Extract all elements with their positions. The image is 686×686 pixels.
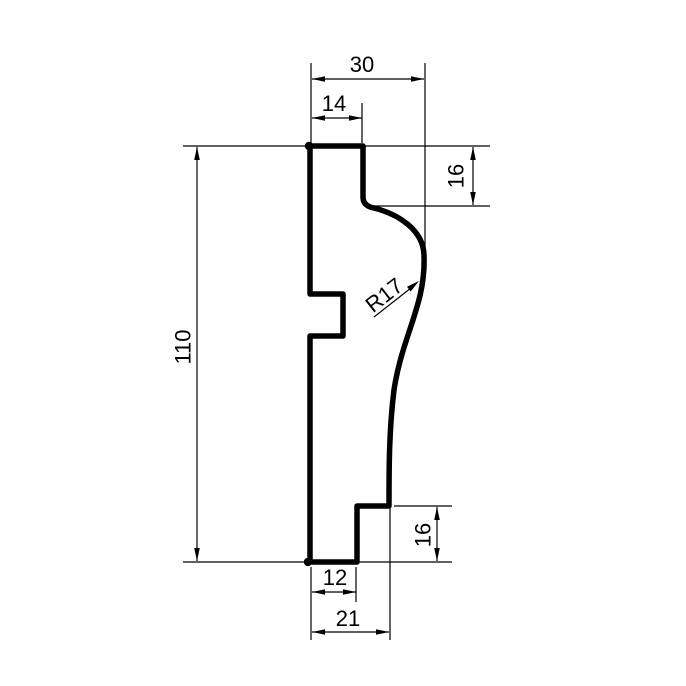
arrow-12-right [343,589,356,595]
arrow-16-lower-down [434,548,440,561]
profile-outline [310,146,424,562]
dimension-lines [197,79,473,632]
label-lower-right-height: 16 [411,523,436,547]
drawing-canvas: 30 14 16 110 R17 16 12 21 [0,0,686,686]
label-top-face-width: 14 [322,91,346,116]
profile-path [310,146,424,562]
arrowheads [194,76,476,635]
label-top-width: 30 [350,52,374,77]
extension-lines [183,63,490,640]
label-radius: R17 [361,273,408,318]
arrow-12-left [312,589,325,595]
label-bottom-inner-width: 12 [323,565,347,590]
arrow-21-right [376,629,389,635]
arrow-30-left [312,76,325,82]
arrow-16-upper-down [470,192,476,205]
arrow-30-right [411,76,424,82]
dimension-labels: 30 14 16 110 R17 16 12 21 [171,52,469,631]
arrow-110-down [194,548,200,561]
corner-dot-bottom-left [304,558,312,566]
corner-dot-top-left [305,142,313,150]
arrow-14-right [349,115,362,121]
arrow-110-up [194,147,200,160]
label-bottom-width: 21 [336,606,360,631]
arrow-14-left [312,115,325,121]
label-upper-right-height: 16 [444,164,469,188]
label-overall-height: 110 [171,329,196,364]
arrow-16-lower-up [434,507,440,520]
arrow-16-upper-up [470,147,476,160]
arrow-21-left [312,629,325,635]
technical-drawing: 30 14 16 110 R17 16 12 21 [0,0,686,686]
